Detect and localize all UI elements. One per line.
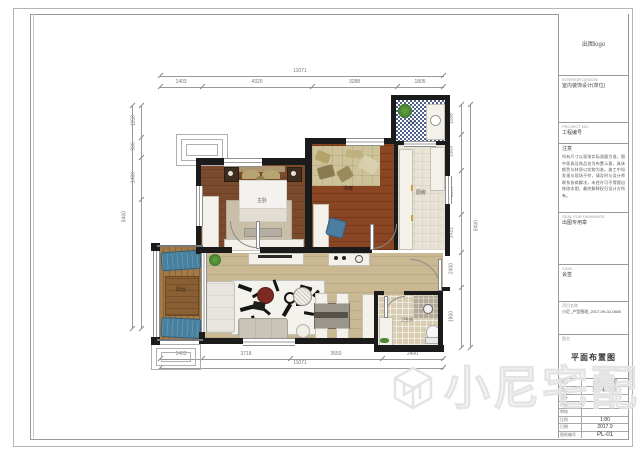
window-bedroom-left [196,186,203,226]
info-row-label: 设计 [559,395,582,401]
drawing-sheet: { "title_block": { "logo": "出图logo", "fi… [0,0,640,452]
wall-segment [262,158,308,165]
stamp-box: SEAL FOR DRAWINGS 出图专用章 [559,213,628,265]
entry-door-leaf [438,259,442,291]
side-table-round [296,324,310,338]
dim-label: 1188 [450,104,455,134]
drawing-title-box: 图名 平面布置图 [559,335,628,380]
info-row-label: 日期 [559,424,582,430]
wall-segment [445,95,450,144]
info-row-value: 别墅/电梯洋房 [582,387,628,393]
study-door-leaf [370,224,374,250]
window-living-balcony-slider [201,253,207,332]
table-lamp [291,171,296,176]
info-row-label: 比例 [559,417,582,423]
dim-line [160,368,444,369]
room-label-left-balcony: 阳台 [171,288,191,293]
balcony-table [165,276,199,316]
info-table: 项目六楼施工图 楼型别墅/电梯洋房 设计 制图 审核 比例1:80 日期2017… [559,379,628,438]
note-box: 注意 所有尺寸以现场实际测量为准，图中家具及饰品仅为布置示意，具体颜色与材质以实… [559,144,628,213]
wall-segment [260,247,308,253]
dim-line [160,76,444,77]
window-east [445,176,452,204]
vanity-plant [380,338,389,343]
room-label-top-balcony: 阳台 [402,121,422,125]
wall-segment [374,291,378,345]
project-no-box: PROJECT NO. 工程编号 [559,123,628,144]
bathroom-door-leaf [384,296,388,318]
dim-line [160,87,444,88]
dim-line [470,104,471,348]
left-balcony-rail [157,245,203,247]
dim-label: 3550 [290,352,382,357]
project-name-value: 小尼_户型图改_2017-09-02-0800 [562,309,625,314]
dim-label: 1800 [450,302,455,332]
wall-segment [391,95,450,100]
sofa-chaise [206,281,235,333]
wall-segment [391,95,396,144]
window-bedroom-top [224,158,262,167]
sideboard-plate [355,255,363,263]
info-row-label: 楼型 [559,387,582,393]
info-row: 日期2017.9 [559,424,628,431]
info-row-label: 项目 [559,379,582,386]
dim-label: 1805 [397,80,443,85]
info-row: 设计 [559,395,628,402]
wall-segment [308,138,346,144]
info-row-value: 2017.9 [582,424,628,430]
room-label-kitchen: 厨房 [410,191,432,196]
dim-label: 3718 [202,352,290,357]
dining-chair [336,293,349,304]
dim-line [132,105,133,329]
wall-segment [196,158,224,165]
info-row-value [582,409,628,415]
dim-label: 1403 [160,80,202,85]
info-row-value: PL-01 [582,432,628,438]
info-row-value [582,395,628,401]
dim-line [461,104,462,348]
bay-window-bottom-left [161,352,191,362]
room-label-master: 主卧 [250,199,274,204]
dim-label: 8400 [475,211,480,241]
wall-segment [312,247,372,253]
tv [258,255,292,258]
shower-head [423,304,433,314]
wall-segment [295,338,374,344]
wall-segment [445,204,450,256]
dining-chair [315,293,328,304]
info-row-label: 制图 [559,402,582,408]
wall-segment [199,338,243,344]
dim-label: 11071 [270,69,330,74]
tatami-pillow [346,149,363,158]
info-row: 审核 [559,409,628,416]
lounge-chair [161,317,202,339]
wall-segment [199,332,205,338]
stamp-label: 出图专用章 [562,220,625,227]
project-name-box: 项目名称 小尼_户型图改_2017-09-02-0800 [559,302,628,335]
note-label: 注意 [562,146,625,153]
wall-segment [404,291,440,295]
window-balcony-slider [404,141,436,147]
countersign-label: 会签 [562,272,625,279]
drawing-title-label: 图名 [562,337,625,342]
counter-handle [411,215,413,221]
table-runner [314,312,348,318]
info-row-value [582,402,628,408]
dim-label: 1421 [450,218,455,248]
kitchen-counter [399,149,413,250]
bedroom-door-leaf [256,221,260,249]
fridge [430,147,445,191]
wall-segment [374,291,384,295]
info-row-value: 1:80 [582,417,628,423]
info-row: 比例1:80 [559,417,628,424]
sideboard-bowl [342,256,346,260]
logo-box: 出图logo [559,14,628,76]
wall-segment [436,141,445,145]
info-row: 制图 [559,402,628,409]
plant [209,254,221,266]
dim-label: 2400 [450,254,455,284]
table-lamp [228,171,233,176]
left-balcony-rail [157,339,203,341]
washer-drum [430,115,441,126]
title-block: 出图logo INTERIOR DESIGN 室内装饰设计(单位) PROJEC… [558,14,628,438]
dim-label: 11071 [270,361,330,366]
window-left-balcony [153,251,160,337]
bed-duvet-fold [239,208,287,222]
room-label-bathroom: 卫生间 [394,318,420,322]
dim-line [141,105,142,329]
sheet-inner-border-2 [33,14,34,438]
sideboard-bowl [334,256,338,260]
info-row: 楼型别墅/电梯洋房 [559,387,628,394]
room-label-study: 书房 [336,187,360,192]
design-firm-box: INTERIOR DESIGN 室内装饰设计(单位) [559,76,628,123]
info-row-value: 六楼施工图 [582,379,628,386]
wall-segment [445,144,450,176]
project-no-label: 工程编号 [562,130,625,137]
dim-label: 8400 [123,202,128,232]
wall-segment [305,165,312,253]
logo-text: 出图logo [562,42,625,50]
info-row-label: 图纸编号 [559,432,582,438]
design-firm-name: 室内装饰设计(单位) [562,83,625,90]
rattan-chair [293,287,312,306]
countersign-box: SIGN 会签 [559,265,628,302]
bay-window-top-left [186,144,218,156]
bedroom-dresser-left [202,196,219,252]
wall-segment [396,141,404,145]
drawing-title: 平面布置图 [562,352,625,363]
note-text: 所有尺寸以现场实际测量为准，图中家具及饰品仅为布置示意，具体颜色与材质以实物为准… [562,154,625,199]
dim-label: 3288 [312,80,397,85]
info-row: 图纸编号PL-01 [559,432,628,438]
dim-label: 1303 [450,137,455,167]
plant [398,104,412,118]
window-living-south [243,338,295,346]
wall-segment [374,345,444,352]
window-study-top [346,138,384,146]
wall-segment [438,291,443,345]
info-row-label: 审核 [559,409,582,415]
dim-label: 4320 [202,80,312,85]
dim-label: 2400 [382,352,443,357]
